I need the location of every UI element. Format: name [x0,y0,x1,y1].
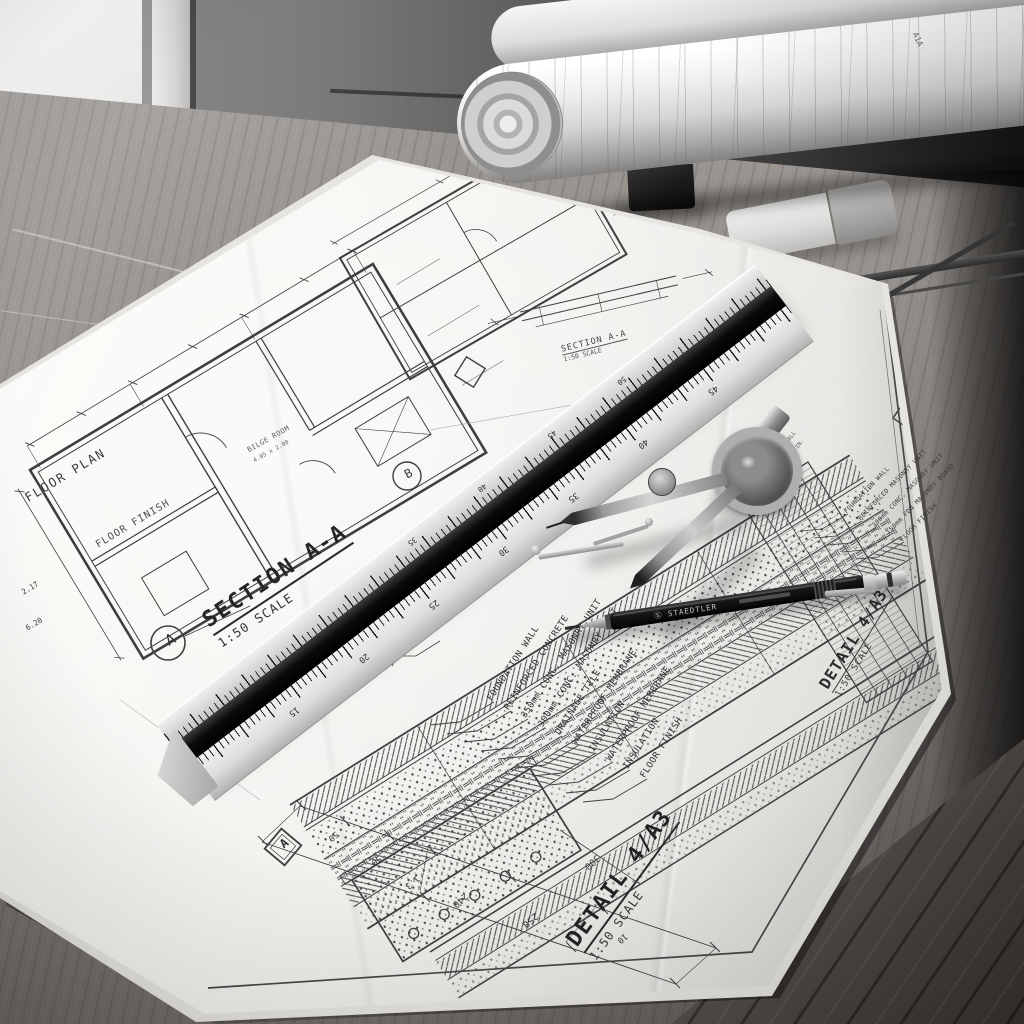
compass-crossbar-ball [531,545,541,555]
ruler-number: 30 [496,544,510,558]
compass-rod-ball [645,518,653,526]
ruler-number: 25 [426,597,440,611]
ruler-number: 40 [636,436,650,450]
compass-hinge-disc [648,468,676,496]
pencil-lead [565,625,580,630]
photo-scene: A1A [0,0,1024,1024]
ruler-number: 35 [566,490,580,504]
ruler-number: 45 [706,383,720,397]
pencil-button-ring [886,572,893,587]
pencil-push-button [874,570,907,588]
pencil-tip-cone [578,616,608,633]
ruler-number: 20 [356,651,370,665]
compass-bowl-hub [740,455,756,469]
ruler-number: 15 [287,704,301,718]
